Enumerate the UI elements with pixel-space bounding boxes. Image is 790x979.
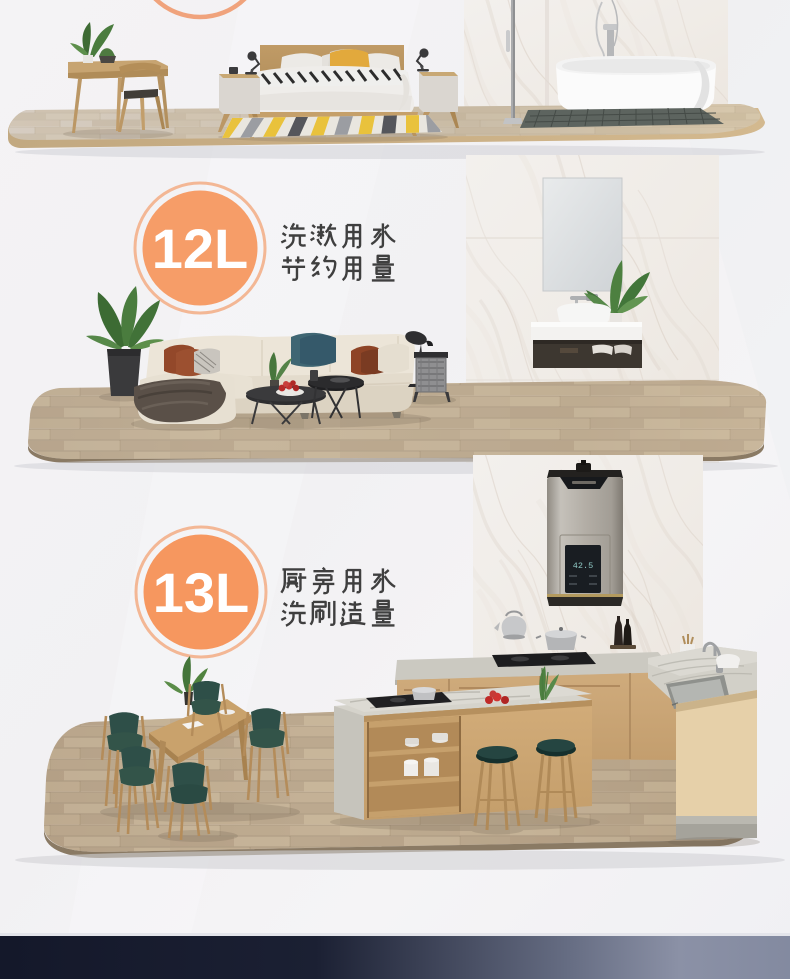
- svg-text:12L: 12L: [152, 217, 249, 280]
- svg-text:13L: 13L: [153, 561, 250, 624]
- svg-text:42.5: 42.5: [573, 561, 593, 571]
